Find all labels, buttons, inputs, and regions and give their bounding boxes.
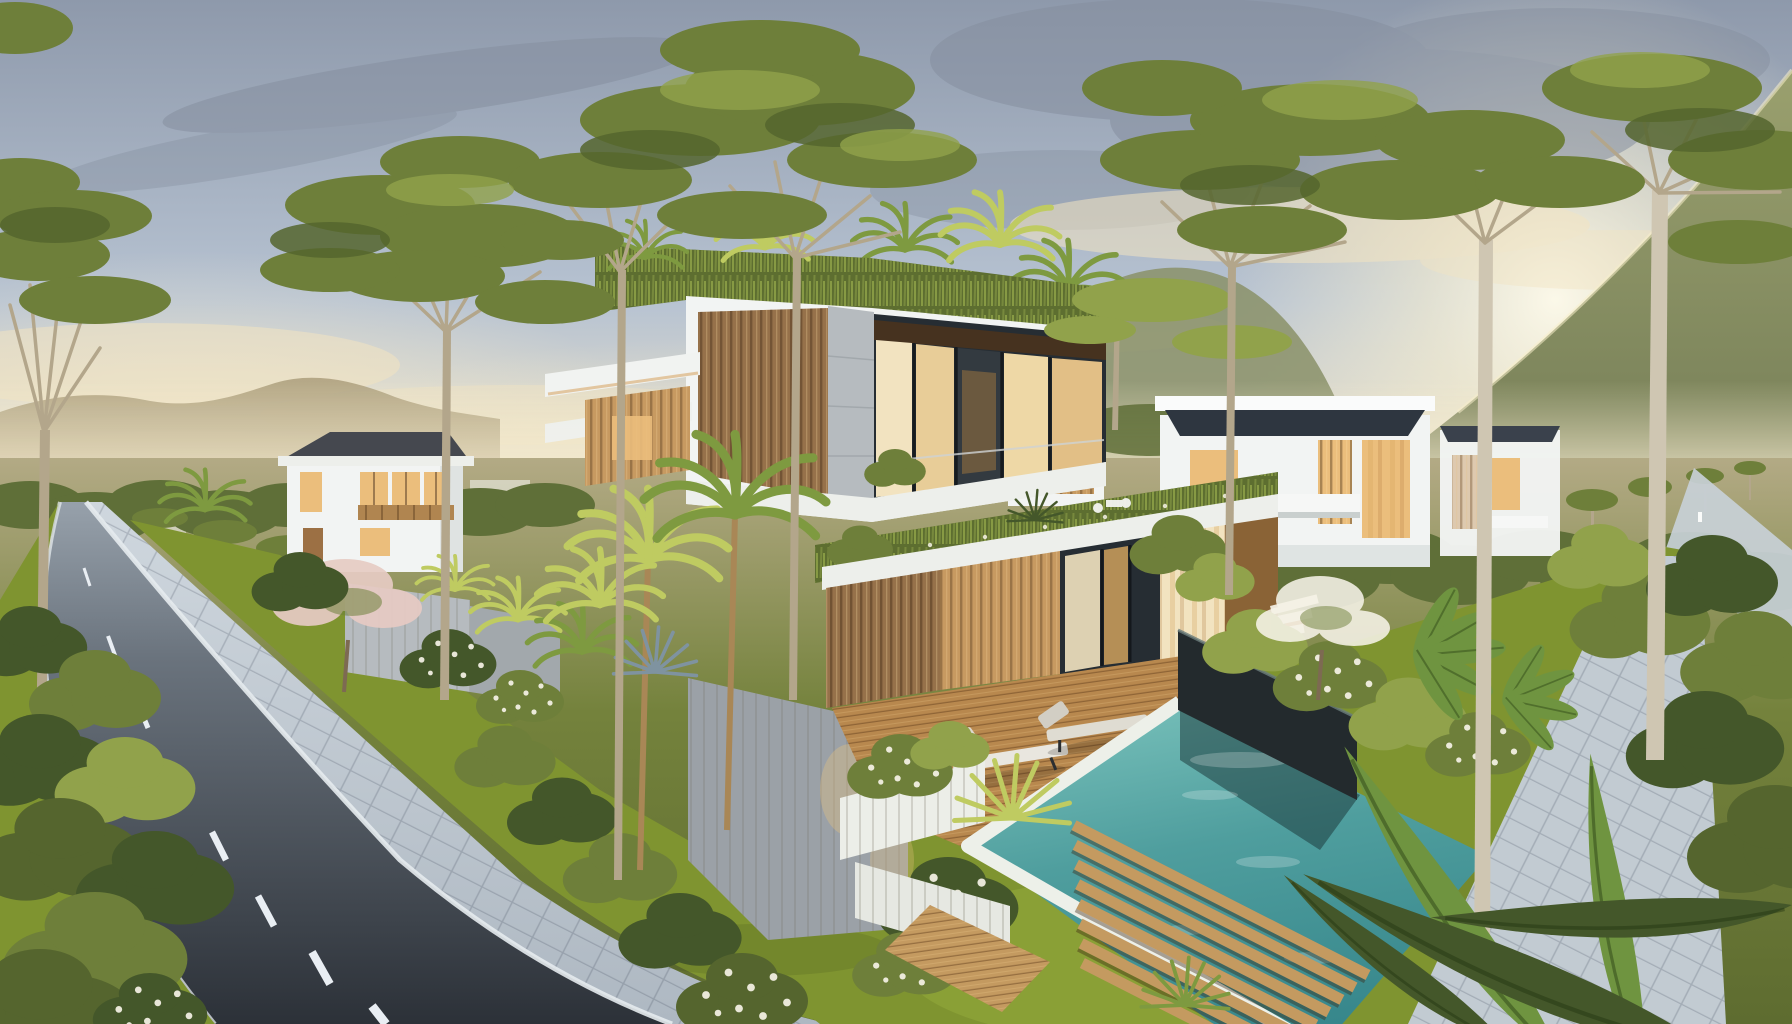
villa-left-balcony bbox=[358, 505, 454, 520]
villa-far-right-white bbox=[1440, 426, 1560, 556]
scene-canvas bbox=[0, 0, 1792, 1024]
tropical-villa-render bbox=[0, 0, 1792, 1024]
